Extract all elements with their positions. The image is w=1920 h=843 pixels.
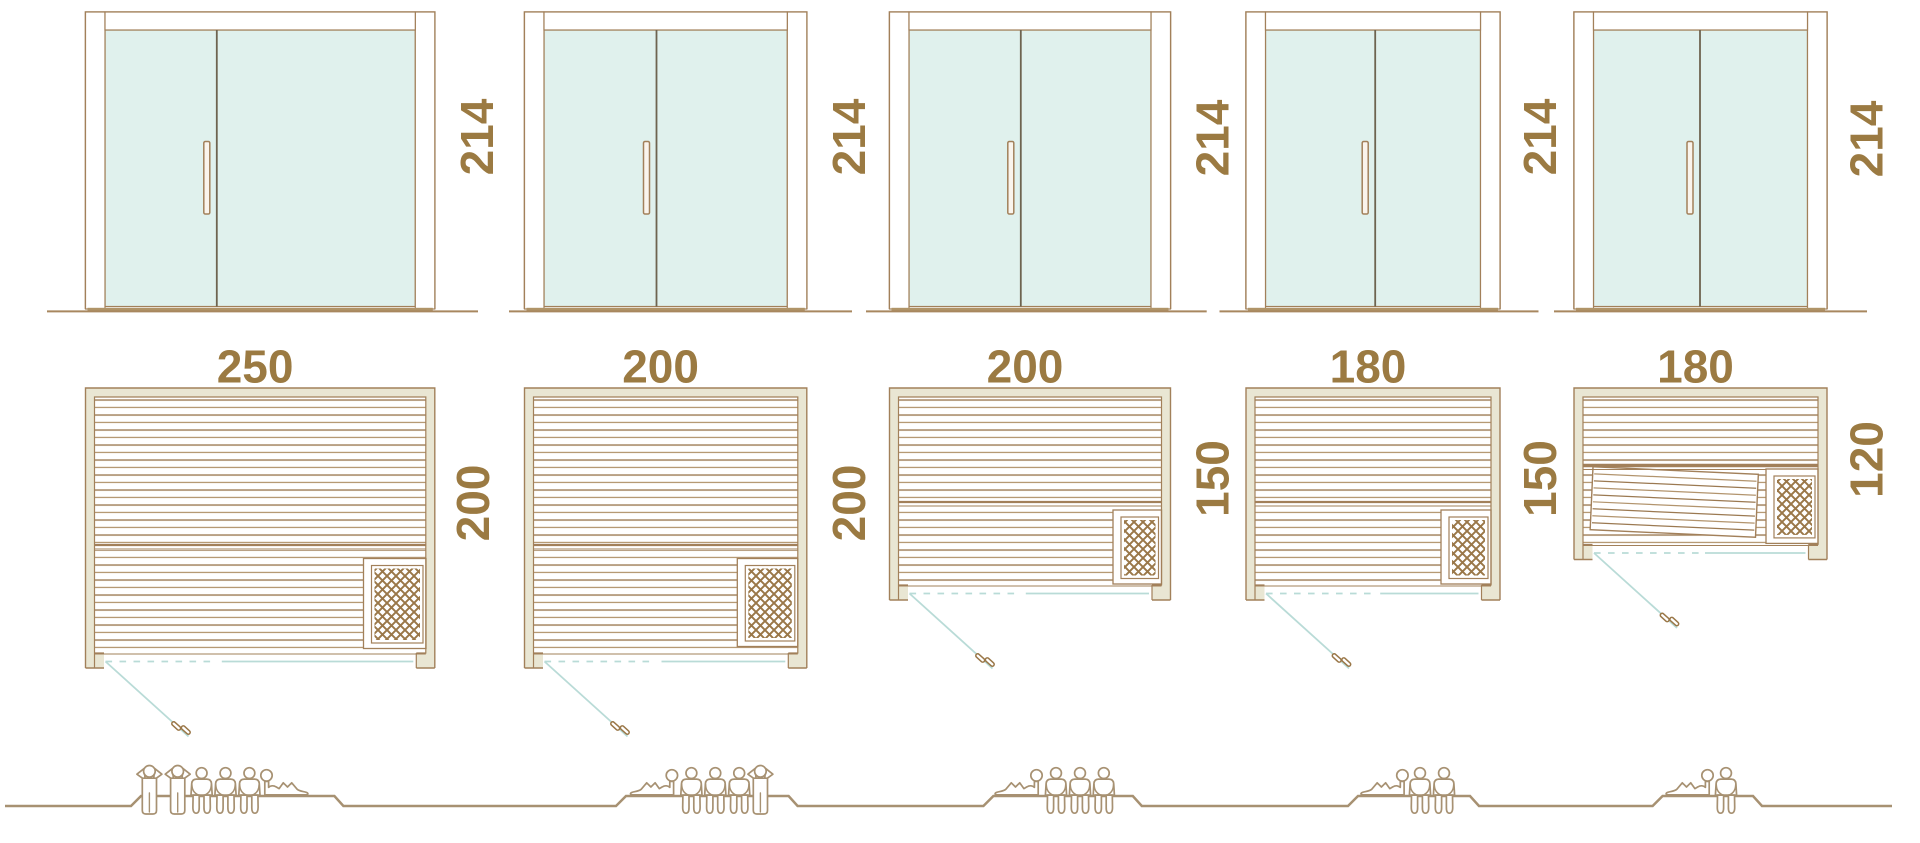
svg-text:200: 200 [622,341,699,393]
svg-text:214: 214 [1841,100,1893,177]
svg-text:200: 200 [987,341,1064,393]
svg-text:250: 250 [217,341,294,393]
svg-text:120: 120 [1841,421,1893,498]
svg-text:200: 200 [823,465,875,542]
svg-text:180: 180 [1330,341,1407,393]
svg-text:214: 214 [1187,99,1239,176]
svg-text:150: 150 [1187,440,1239,517]
svg-text:150: 150 [1514,440,1566,517]
svg-text:214: 214 [823,98,875,175]
svg-text:180: 180 [1657,341,1734,393]
svg-text:200: 200 [447,465,499,542]
svg-text:214: 214 [451,98,503,175]
svg-text:214: 214 [1514,98,1566,175]
